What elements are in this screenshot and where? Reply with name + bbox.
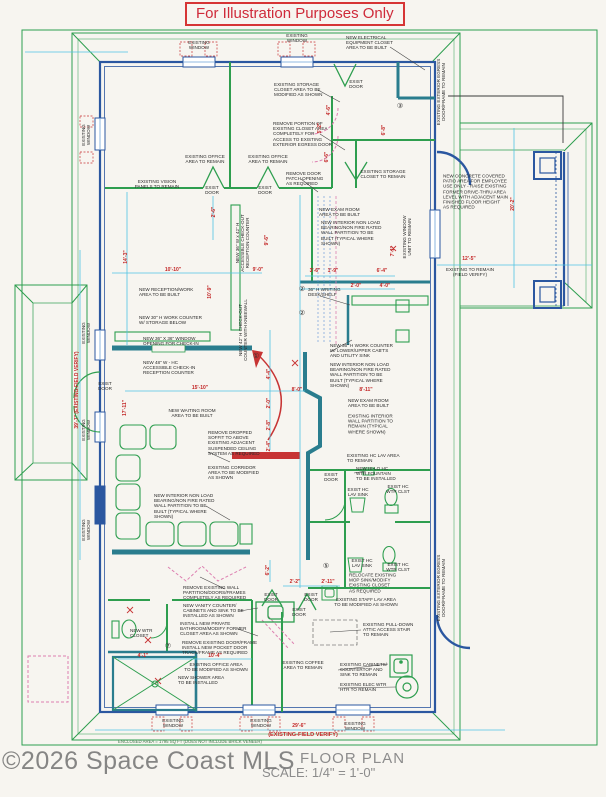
floor-plan-svg xyxy=(0,0,606,797)
toilets xyxy=(112,489,398,639)
illustration-banner: For Illustration Purposes Only xyxy=(185,2,405,26)
waiting-chairs xyxy=(116,425,252,546)
vanity-sink xyxy=(256,602,294,622)
layout-guides xyxy=(318,196,336,344)
page-border xyxy=(22,30,597,745)
patio-columns xyxy=(534,152,561,308)
kitchen-sink-cabinet xyxy=(390,655,412,677)
demolition-pink-marks xyxy=(28,108,338,702)
counters xyxy=(115,205,428,342)
floor-plan-sheet: For Illustration Purposes Only EXISTING … xyxy=(0,0,606,797)
leader-lines xyxy=(200,47,425,688)
lav-sinks xyxy=(348,468,374,572)
shower xyxy=(113,657,196,710)
exterior-walls xyxy=(100,62,568,712)
window-demo-marks xyxy=(80,42,374,731)
checkin-window-opening xyxy=(152,345,185,352)
copyright-watermark: ©2026 Space Coast MLS xyxy=(2,747,295,776)
attic-stair xyxy=(313,620,357,645)
doors xyxy=(74,64,470,648)
illustration-banner-text: For Illustration Purposes Only xyxy=(196,5,394,22)
porch-outline xyxy=(15,285,87,480)
water-heater xyxy=(396,676,418,698)
enclosed-area-note: ENCLOSED AREA = 1795 SQ FT (DOES NOT INC… xyxy=(118,739,262,744)
canopy-outline xyxy=(448,96,563,143)
interior-walls-new xyxy=(108,62,435,712)
